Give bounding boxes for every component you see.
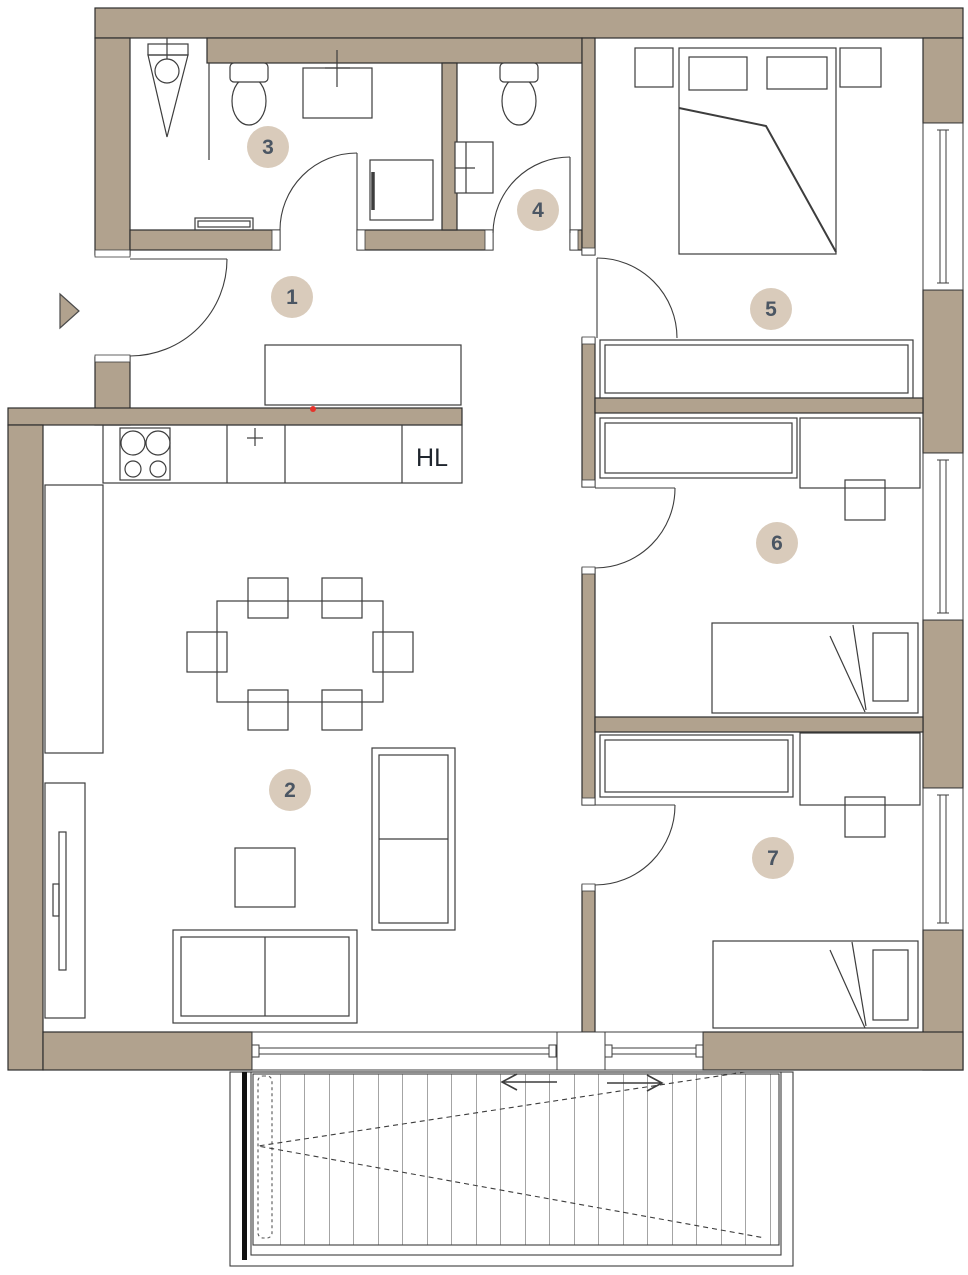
wall-top — [95, 8, 963, 38]
dining-table — [217, 601, 383, 702]
kitchen-tall-cabinet — [45, 485, 103, 753]
window-room6 — [923, 453, 963, 620]
room4-jamb-left — [485, 230, 493, 250]
wall-right-c — [923, 620, 963, 788]
pillar — [557, 1032, 605, 1070]
washbasin-icon-room4 — [455, 142, 493, 193]
floor-plan-canvas: HL — [0, 0, 968, 1275]
room6-jamb-bottom — [582, 567, 595, 574]
desk-room7 — [800, 733, 920, 805]
wall-room6-room7 — [595, 717, 923, 732]
sliding-door-living — [252, 1032, 557, 1070]
nightstand — [840, 48, 881, 87]
room5-door — [597, 258, 677, 338]
blanket-fold — [830, 636, 865, 712]
floor-plan-drawing: HL — [0, 0, 968, 1275]
hall-sideboard — [265, 345, 461, 405]
door-jambs — [95, 230, 595, 891]
dining-chair — [322, 578, 362, 618]
room-badge-3-label: 3 — [262, 136, 274, 159]
window-room5 — [923, 123, 963, 290]
wall-corridor-a — [582, 38, 595, 255]
wardrobe-room7 — [600, 735, 793, 797]
wall-corridor-b — [582, 338, 595, 487]
room7-door — [595, 805, 675, 885]
wall-right-a — [923, 38, 963, 123]
wardrobe-room6 — [600, 418, 797, 478]
room3-door — [280, 153, 357, 230]
desk-room6 — [800, 418, 920, 488]
room-badge-7-label: 7 — [767, 847, 779, 870]
room-badge-1-label: 1 — [286, 286, 298, 309]
room-badge-7: 7 — [752, 837, 794, 879]
wall-left-upper-a — [95, 38, 130, 255]
blanket-fold — [853, 625, 866, 710]
kitchen-counter — [103, 425, 462, 483]
room-badge-3: 3 — [247, 126, 289, 168]
sliding-door-room7 — [605, 1032, 703, 1070]
room6-door — [595, 488, 675, 568]
sink-icon — [247, 428, 263, 446]
wall-hall-kitchen — [8, 408, 462, 425]
pillow — [873, 950, 908, 1020]
wall-room5-room6 — [595, 398, 923, 413]
wall-right-b — [923, 290, 963, 453]
room-badge-1: 1 — [271, 276, 313, 318]
radiator-room3 — [195, 218, 253, 230]
room-badge-5-label: 5 — [765, 298, 777, 321]
nightstand — [635, 48, 673, 87]
dining-set — [187, 578, 413, 730]
red-marker-dot — [310, 406, 316, 412]
room7-jamb-bottom — [582, 884, 595, 891]
room5-jamb-bottom — [582, 337, 595, 344]
room6-jamb-top — [582, 480, 595, 487]
bedroom6-furniture — [600, 418, 920, 713]
room-badges: 1 2 3 4 5 6 7 — [247, 126, 798, 879]
room-badge-2: 2 — [269, 769, 311, 811]
chair-room7 — [845, 797, 885, 837]
room-badge-2-label: 2 — [284, 779, 296, 802]
room-badge-4: 4 — [517, 189, 559, 231]
entrance-jamb-top — [95, 250, 130, 257]
dining-chair — [322, 690, 362, 730]
bedroom5-furniture — [600, 48, 913, 398]
shaft-label: HL — [416, 444, 448, 472]
sofa-vertical — [372, 748, 455, 930]
bathroom3-fixtures — [148, 38, 433, 230]
wall-bath-hall-b — [357, 230, 493, 250]
wall-top-installation-band — [207, 38, 582, 63]
single-bed-room6 — [712, 623, 918, 713]
toilet-icon-room4 — [500, 63, 538, 125]
wall-bottom-left — [43, 1032, 252, 1070]
wall-left-lower — [8, 425, 43, 1070]
room3-jamb-left — [272, 230, 280, 250]
toilet-icon-room3 — [230, 63, 268, 125]
room7-jamb-top — [582, 798, 595, 805]
pillow — [767, 57, 827, 89]
wall-corridor-c — [582, 568, 595, 805]
wc4-fixtures — [455, 63, 538, 193]
room-badge-5: 5 — [750, 288, 792, 330]
washing-machine-icon — [370, 160, 433, 220]
hob-icon — [120, 428, 170, 480]
wall-corridor-d — [582, 885, 595, 1032]
sofa-horizontal — [173, 930, 357, 1023]
room3-jamb-right — [357, 230, 365, 250]
room-badge-4-label: 4 — [532, 199, 544, 222]
entrance-door — [130, 259, 227, 356]
shower-icon — [148, 38, 188, 137]
pillow — [873, 633, 908, 701]
windows — [923, 123, 963, 930]
double-bed — [679, 48, 836, 254]
tv-sideboard — [45, 783, 85, 1018]
bedroom7-furniture — [600, 733, 920, 1028]
room5-jamb-top — [582, 248, 595, 255]
window-room7 — [923, 788, 963, 930]
balcony — [230, 1072, 793, 1266]
wall-bottom-right — [703, 1032, 963, 1070]
room4-jamb-right — [570, 230, 578, 250]
blanket-fold — [679, 108, 836, 252]
dining-chair — [373, 632, 413, 672]
dining-chair — [248, 690, 288, 730]
decking-planks — [276, 1074, 779, 1245]
room-badge-6: 6 — [756, 522, 798, 564]
entrance-jamb-bottom — [95, 355, 130, 362]
room-badge-6-label: 6 — [771, 532, 783, 555]
sliding-doors — [252, 1032, 703, 1070]
pillow — [689, 57, 747, 90]
dining-chair — [187, 632, 227, 672]
balcony-edge-bar — [242, 1072, 247, 1260]
drainage-channel — [258, 1076, 272, 1238]
chair-room6 — [845, 480, 885, 520]
coffee-table — [235, 848, 295, 907]
wardrobe-room5 — [600, 340, 913, 398]
entrance-arrow-icon — [60, 294, 79, 328]
living-furniture — [45, 748, 455, 1023]
wall-bath-hall-a — [130, 230, 280, 250]
dining-chair — [248, 578, 288, 618]
kitchen — [45, 425, 462, 753]
single-bed-room7 — [713, 941, 918, 1028]
